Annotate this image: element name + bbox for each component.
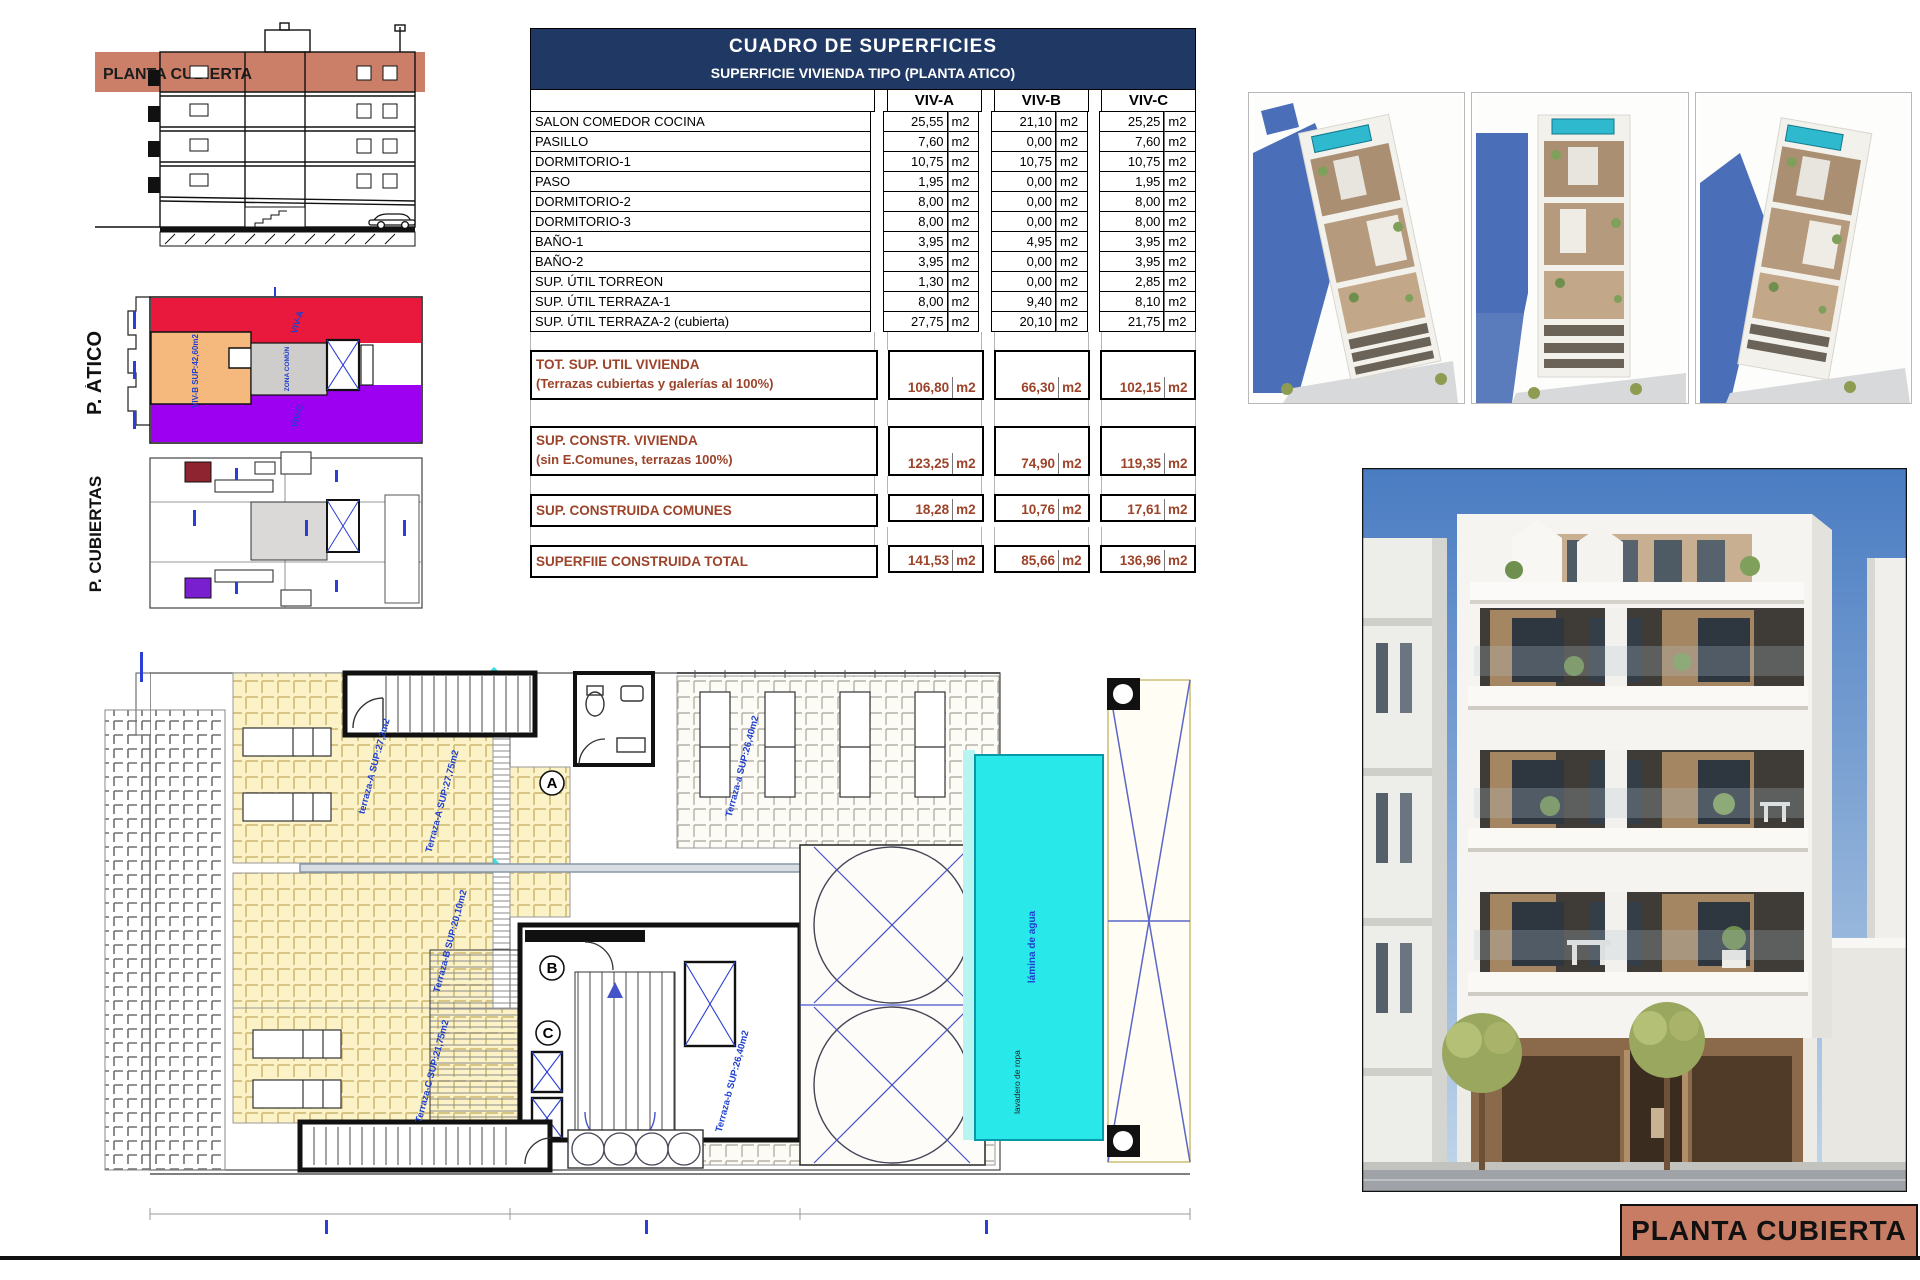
row-unit: m2	[1056, 171, 1088, 192]
row-value: 1,95	[883, 171, 948, 192]
row-unit: m2	[948, 291, 980, 312]
row-value: 8,10	[1099, 291, 1164, 312]
row-value: 3,95	[883, 251, 948, 272]
total-util-sublabel: (Terrazas cubiertas y galerías al 100%)	[536, 375, 872, 394]
row-unit: m2	[1164, 151, 1196, 172]
svg-text:VIV-B SUP:42,60m2: VIV-B SUP:42,60m2	[191, 334, 200, 408]
table-title: CUADRO DE SUPERFICIES	[531, 29, 1195, 65]
pool: lámina de agua	[963, 750, 1103, 1140]
row-unit: m2	[1056, 231, 1088, 252]
row-value: 25,55	[883, 111, 948, 132]
atico-step-marks	[133, 311, 136, 429]
row-unit: m2	[1164, 171, 1196, 192]
row-value: 0,00	[991, 131, 1056, 152]
table-row: DORMITORIO-110,75m210,75m210,75m2	[530, 152, 1196, 172]
row-unit: m2	[948, 111, 980, 132]
row-value: 1,30	[883, 271, 948, 292]
row-unit: m2	[1056, 291, 1088, 312]
stairs-top	[345, 673, 535, 735]
row-unit: m2	[1056, 151, 1088, 172]
constr-comunes-viv-c: 17,61m2	[1100, 494, 1196, 522]
bathroom-top	[575, 673, 653, 765]
row-value: 25,25	[1099, 111, 1164, 132]
svg-text:ZONA COMÚN: ZONA COMÚN	[282, 346, 291, 391]
render-aerial-2	[1471, 92, 1688, 404]
brace-strip	[1107, 678, 1190, 1162]
neighbor-left	[1362, 538, 1447, 1192]
constr-vivienda-viv-b: 74,90m2	[994, 426, 1090, 476]
skylights	[800, 845, 985, 1165]
row-unit: m2	[948, 191, 980, 212]
row-value: 3,95	[1099, 231, 1164, 252]
sheet-title: PLANTA CUBIERTA	[1631, 1215, 1907, 1247]
row-value: 0,00	[991, 251, 1056, 272]
row-value: 7,60	[883, 131, 948, 152]
row-unit: m2	[1164, 191, 1196, 212]
row-label: BAÑO-1	[530, 231, 871, 252]
row-value: 8,00	[1099, 191, 1164, 212]
constr-vivienda-viv-c: 119,35m2	[1100, 426, 1196, 476]
row-unit: m2	[1164, 271, 1196, 292]
marker-b: B	[547, 960, 558, 977]
constr-vivienda-sublabel: (sin E.Comunes, terrazas 100%)	[536, 451, 872, 470]
drawing-sheet: PLANTA CUBIERTA	[0, 0, 1920, 1280]
row-value: 4,95	[991, 231, 1056, 252]
row-value: 3,95	[883, 231, 948, 252]
aerial-renders-strip	[1248, 92, 1912, 404]
section-band-label: PLANTA CUBIERTA	[103, 66, 252, 83]
col-viv-a: VIV-A	[887, 89, 982, 112]
surface-table: CUADRO DE SUPERFICIES SUPERFICIE VIVIEND…	[530, 28, 1196, 578]
row-unit: m2	[948, 271, 980, 292]
cubiertas-red-element	[185, 462, 211, 482]
render-aerial-3	[1695, 92, 1912, 404]
row-unit: m2	[948, 171, 980, 192]
cubiertas-elevator	[327, 500, 359, 552]
table-spacer	[530, 332, 1196, 350]
row-value: 10,75	[1099, 151, 1164, 172]
dimension-line	[150, 1174, 1190, 1234]
row-label: PASO	[530, 171, 871, 192]
total-util-viv-c: 102,15m2	[1100, 350, 1196, 400]
row-unit: m2	[1056, 111, 1088, 132]
row-label: SUP. ÚTIL TERRAZA-1	[530, 291, 871, 312]
row-unit: m2	[1056, 211, 1088, 232]
row-unit: m2	[1164, 111, 1196, 132]
row-unit: m2	[1056, 191, 1088, 212]
row-value: 9,40	[991, 291, 1056, 312]
row-unit: m2	[1056, 131, 1088, 152]
row-label: DORMITORIO-1	[530, 151, 871, 172]
constr-vivienda-block: SUP. CONSTR. VIVIENDA (sin E.Comunes, te…	[530, 426, 1196, 476]
row-unit: m2	[1056, 271, 1088, 292]
col-viv-b: VIV-B	[994, 89, 1089, 112]
row-label: DORMITORIO-2	[530, 191, 871, 212]
row-unit: m2	[948, 211, 980, 232]
row-unit: m2	[1164, 291, 1196, 312]
row-value: 10,75	[991, 151, 1056, 172]
solar-tanks	[568, 1130, 703, 1168]
row-unit: m2	[948, 231, 980, 252]
balcony-floor-3	[1468, 892, 1808, 996]
facade-render	[1362, 468, 1907, 1192]
constr-vivienda-viv-a: 123,25m2	[888, 426, 984, 476]
row-value: 0,00	[991, 191, 1056, 212]
render-aerial-1	[1248, 92, 1465, 404]
laundry-label: lavadero de ropa	[1012, 1050, 1022, 1114]
row-unit: m2	[1056, 311, 1088, 332]
table-row: DORMITORIO-28,00m20,00m28,00m2	[530, 192, 1196, 212]
row-value: 8,00	[1099, 211, 1164, 232]
lower-roof-grid	[105, 710, 225, 1170]
core-stairs	[575, 972, 675, 1137]
constr-vivienda-label: SUP. CONSTR. VIVIENDA	[536, 431, 872, 451]
total-util-viv-b: 66,30m2	[994, 350, 1090, 400]
surface-table-rows: SALON COMEDOR COCINA25,55m221,10m225,25m…	[530, 112, 1196, 332]
row-value: 20,10	[991, 311, 1056, 332]
table-row: DORMITORIO-38,00m20,00m28,00m2	[530, 212, 1196, 232]
stairs-bottom	[300, 1122, 551, 1170]
row-unit: m2	[948, 131, 980, 152]
table-row: SALON COMEDOR COCINA25,55m221,10m225,25m…	[530, 112, 1196, 132]
constr-comunes-block: SUP. CONSTRUIDA COMUNES 18,28m2 10,76m2 …	[530, 494, 1196, 527]
table-row: SUP. ÚTIL TORREON1,30m20,00m22,85m2	[530, 272, 1196, 292]
table-spacer	[530, 400, 1196, 426]
atico-plan-drawing: P. ÁTICO VIV-A VIV-B SUP:42,60m2 VIV-C Z…	[85, 285, 430, 457]
constr-comunes-viv-b: 10,76m2	[994, 494, 1090, 522]
row-value: 0,00	[991, 271, 1056, 292]
constr-comunes-viv-a: 18,28m2	[888, 494, 984, 522]
street	[1362, 1170, 1907, 1192]
table-row: BAÑO-23,95m20,00m23,95m2	[530, 252, 1196, 272]
row-unit: m2	[1164, 131, 1196, 152]
total-util-block: TOT. SUP. UTIL VIVIENDA (Terrazas cubier…	[530, 350, 1196, 400]
row-value: 7,60	[1099, 131, 1164, 152]
table-row: BAÑO-13,95m24,95m23,95m2	[530, 232, 1196, 252]
section-elevation-drawing: PLANTA CUBIERTA	[95, 22, 425, 270]
balcony-floor-1	[1468, 608, 1808, 710]
row-value: 21,75	[1099, 311, 1164, 332]
atico-zone-viv-b	[151, 332, 251, 404]
table-column-header-row: VIV-A VIV-B VIV-C	[530, 90, 1196, 112]
row-unit: m2	[1056, 251, 1088, 272]
total-util-label: TOT. SUP. UTIL VIVIENDA	[536, 355, 872, 375]
row-value: 10,75	[883, 151, 948, 172]
table-spacer	[530, 527, 1196, 545]
table-row: SUP. ÚTIL TERRAZA-18,00m29,40m28,10m2	[530, 292, 1196, 312]
row-label: SUP. ÚTIL TORREON	[530, 271, 871, 292]
table-row: PASILLO7,60m20,00m27,60m2	[530, 132, 1196, 152]
row-value: 8,00	[883, 291, 948, 312]
table-row: SUP. ÚTIL TERRAZA-2 (cubierta)27,75m220,…	[530, 312, 1196, 332]
row-value: 8,00	[883, 191, 948, 212]
row-unit: m2	[948, 311, 980, 332]
row-unit: m2	[948, 251, 980, 272]
atico-plan-title: P. ÁTICO	[85, 331, 106, 415]
col-viv-c: VIV-C	[1101, 89, 1196, 112]
table-subtitle: SUPERFICIE VIVIENDA TIPO (PLANTA ATICO)	[531, 65, 1195, 89]
balcony-floor-2	[1468, 750, 1808, 852]
constr-comunes-label: SUP. CONSTRUIDA COMUNES	[530, 494, 878, 527]
atico-elevator	[327, 340, 373, 390]
total-util-viv-a: 106,80m2	[888, 350, 984, 400]
row-value: 3,95	[1099, 251, 1164, 272]
row-unit: m2	[948, 151, 980, 172]
row-label: SALON COMEDOR COCINA	[530, 111, 871, 132]
atico-step-boundary	[128, 297, 150, 425]
marker-c: C	[543, 1025, 554, 1042]
row-label: BAÑO-2	[530, 251, 871, 272]
row-label: PASILLO	[530, 131, 871, 152]
table-spacer	[530, 476, 1196, 494]
roof-plan-drawing: lámina de agua	[85, 552, 1200, 1252]
row-unit: m2	[1164, 231, 1196, 252]
row-label: SUP. ÚTIL TERRAZA-2 (cubierta)	[530, 311, 871, 332]
row-unit: m2	[1164, 311, 1196, 332]
row-value: 0,00	[991, 171, 1056, 192]
row-value: 8,00	[883, 211, 948, 232]
car-glyph	[369, 214, 415, 228]
pool-label: lámina de agua	[1027, 910, 1038, 983]
row-unit: m2	[1164, 211, 1196, 232]
sheet-title-box: PLANTA CUBIERTA	[1620, 1204, 1918, 1258]
row-unit: m2	[1164, 251, 1196, 272]
marker-a: A	[547, 775, 558, 792]
row-value: 27,75	[883, 311, 948, 332]
row-label: DORMITORIO-3	[530, 211, 871, 232]
surface-table-header: CUADRO DE SUPERFICIES SUPERFICIE VIVIEND…	[530, 28, 1196, 90]
row-value: 21,10	[991, 111, 1056, 132]
row-value: 1,95	[1099, 171, 1164, 192]
row-value: 0,00	[991, 211, 1056, 232]
table-row: PASO1,95m20,00m21,95m2	[530, 172, 1196, 192]
row-value: 2,85	[1099, 271, 1164, 292]
